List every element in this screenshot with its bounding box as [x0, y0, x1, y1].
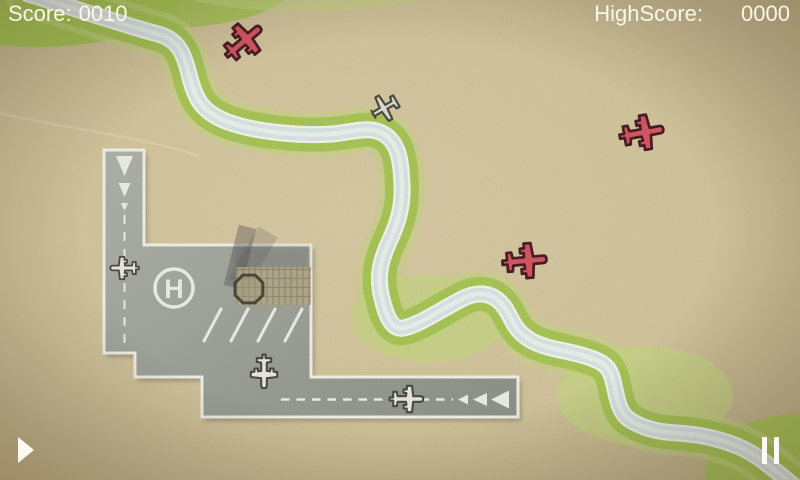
- score-value: 0010: [79, 1, 128, 27]
- pause-button[interactable]: [762, 437, 779, 464]
- game-stage: H: [0, 0, 800, 480]
- highscore-display: HighScore: 0000: [594, 1, 790, 27]
- vignette: [0, 0, 800, 480]
- score-label: Score:: [8, 1, 72, 27]
- play-icon: [18, 437, 34, 463]
- play-button[interactable]: [18, 437, 34, 463]
- game-scene: H: [0, 0, 800, 480]
- highscore-label: HighScore:: [594, 1, 703, 27]
- highscore-value: 0000: [741, 1, 790, 27]
- pause-icon: [762, 437, 767, 464]
- pause-icon: [774, 437, 779, 464]
- score-display: Score: 0010: [8, 1, 128, 27]
